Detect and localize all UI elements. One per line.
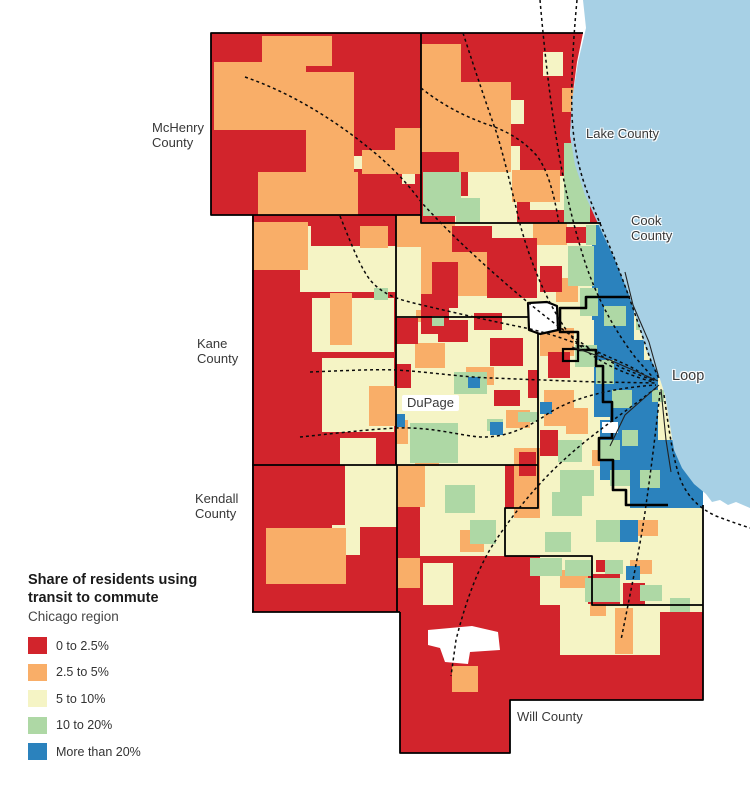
legend-swatch-0-2half-pct: [28, 637, 47, 654]
label-text: McHenry: [152, 120, 204, 135]
label-dupage-county: DuPage: [402, 395, 459, 411]
legend-swatch-10-20pct: [28, 717, 47, 734]
label-loop: Loop: [672, 369, 704, 384]
legend-title-line2: transit to commute: [28, 590, 258, 608]
legend-label: 2.5 to 5%: [56, 665, 109, 679]
legend-subtitle: Chicago region: [28, 609, 258, 625]
label-text: Loop: [672, 369, 704, 384]
legend-title: Share of residents using transit to comm…: [28, 572, 258, 607]
legend-label: 0 to 2.5%: [56, 639, 109, 653]
label-lake-county: Lake County: [586, 126, 659, 141]
legend-item: 0 to 2.5%: [28, 637, 258, 654]
label-text: Cook: [631, 213, 672, 228]
label-text: Lake County: [586, 126, 659, 141]
label-kendall-county: Kendall County: [195, 491, 238, 521]
suburb-outline: [563, 349, 578, 361]
chicago-region-transit-map: McHenry County Lake County Cook County K…: [0, 0, 750, 792]
legend-item: 2.5 to 5%: [28, 664, 258, 681]
label-cook-county: Cook County: [631, 213, 672, 243]
label-text: County: [631, 228, 672, 243]
legend-item: More than 20%: [28, 743, 258, 760]
midway-airport-area: [602, 422, 618, 433]
label-kane-county: Kane County: [197, 336, 238, 366]
legend-label: 10 to 20%: [56, 718, 112, 732]
label-text: County: [197, 351, 238, 366]
legend-swatch-5-10pct: [28, 690, 47, 707]
legend-label: 5 to 10%: [56, 692, 105, 706]
label-text: County: [152, 135, 204, 150]
legend-swatch-2half-5pct: [28, 664, 47, 681]
page: { "palette": { "cat1": "#d2242c", "cat2"…: [0, 0, 750, 792]
legend-items: 0 to 2.5% 2.5 to 5% 5 to 10% 10 to 20% M…: [28, 637, 258, 760]
label-text: County: [195, 506, 238, 521]
legend-swatch-over-20pct: [28, 743, 47, 760]
legend-item: 5 to 10%: [28, 690, 258, 707]
legend-title-line1: Share of residents using: [28, 572, 258, 590]
legend-label: More than 20%: [56, 745, 141, 759]
label-will-county: Will County: [517, 709, 583, 724]
label-text: DuPage: [407, 395, 454, 410]
label-text: Will County: [517, 709, 583, 724]
legend: Share of residents using transit to comm…: [28, 572, 258, 770]
label-text: Kendall: [195, 491, 238, 506]
label-mchenry-county: McHenry County: [152, 120, 204, 150]
label-text: Kane: [197, 336, 238, 351]
legend-item: 10 to 20%: [28, 717, 258, 734]
